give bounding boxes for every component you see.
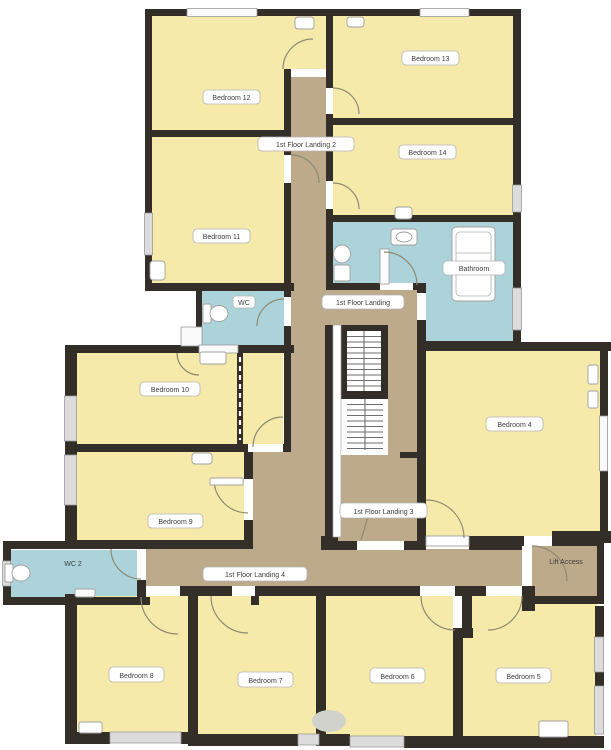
svg-text:Bedroom 13: Bedroom 13 bbox=[411, 56, 449, 63]
svg-text:Bedroom 5: Bedroom 5 bbox=[506, 674, 540, 681]
svg-text:WC: WC bbox=[238, 300, 250, 307]
svg-text:1st Floor Landing 3: 1st Floor Landing 3 bbox=[354, 509, 414, 516]
svg-text:1st Floor Landing 2: 1st Floor Landing 2 bbox=[276, 142, 336, 149]
svg-text:Bedroom 8: Bedroom 8 bbox=[119, 673, 153, 680]
svg-text:Bedroom 11: Bedroom 11 bbox=[203, 234, 241, 241]
svg-text:Bedroom 10: Bedroom 10 bbox=[151, 387, 189, 394]
svg-text:Bedroom 14: Bedroom 14 bbox=[408, 150, 446, 157]
svg-text:Lift Access: Lift Access bbox=[549, 559, 583, 566]
svg-text:1st Floor Landing 4: 1st Floor Landing 4 bbox=[225, 572, 285, 579]
svg-text:1st Floor Landing: 1st Floor Landing bbox=[336, 300, 390, 307]
svg-text:Bedroom 4: Bedroom 4 bbox=[497, 422, 531, 429]
svg-text:Bedroom 9: Bedroom 9 bbox=[158, 519, 192, 526]
svg-text:Bedroom 12: Bedroom 12 bbox=[212, 95, 250, 102]
svg-text:Bedroom 7: Bedroom 7 bbox=[248, 678, 282, 685]
svg-text:WC 2: WC 2 bbox=[64, 561, 82, 568]
svg-text:Bathroom: Bathroom bbox=[459, 266, 490, 273]
svg-text:Bedroom 6: Bedroom 6 bbox=[380, 674, 414, 681]
